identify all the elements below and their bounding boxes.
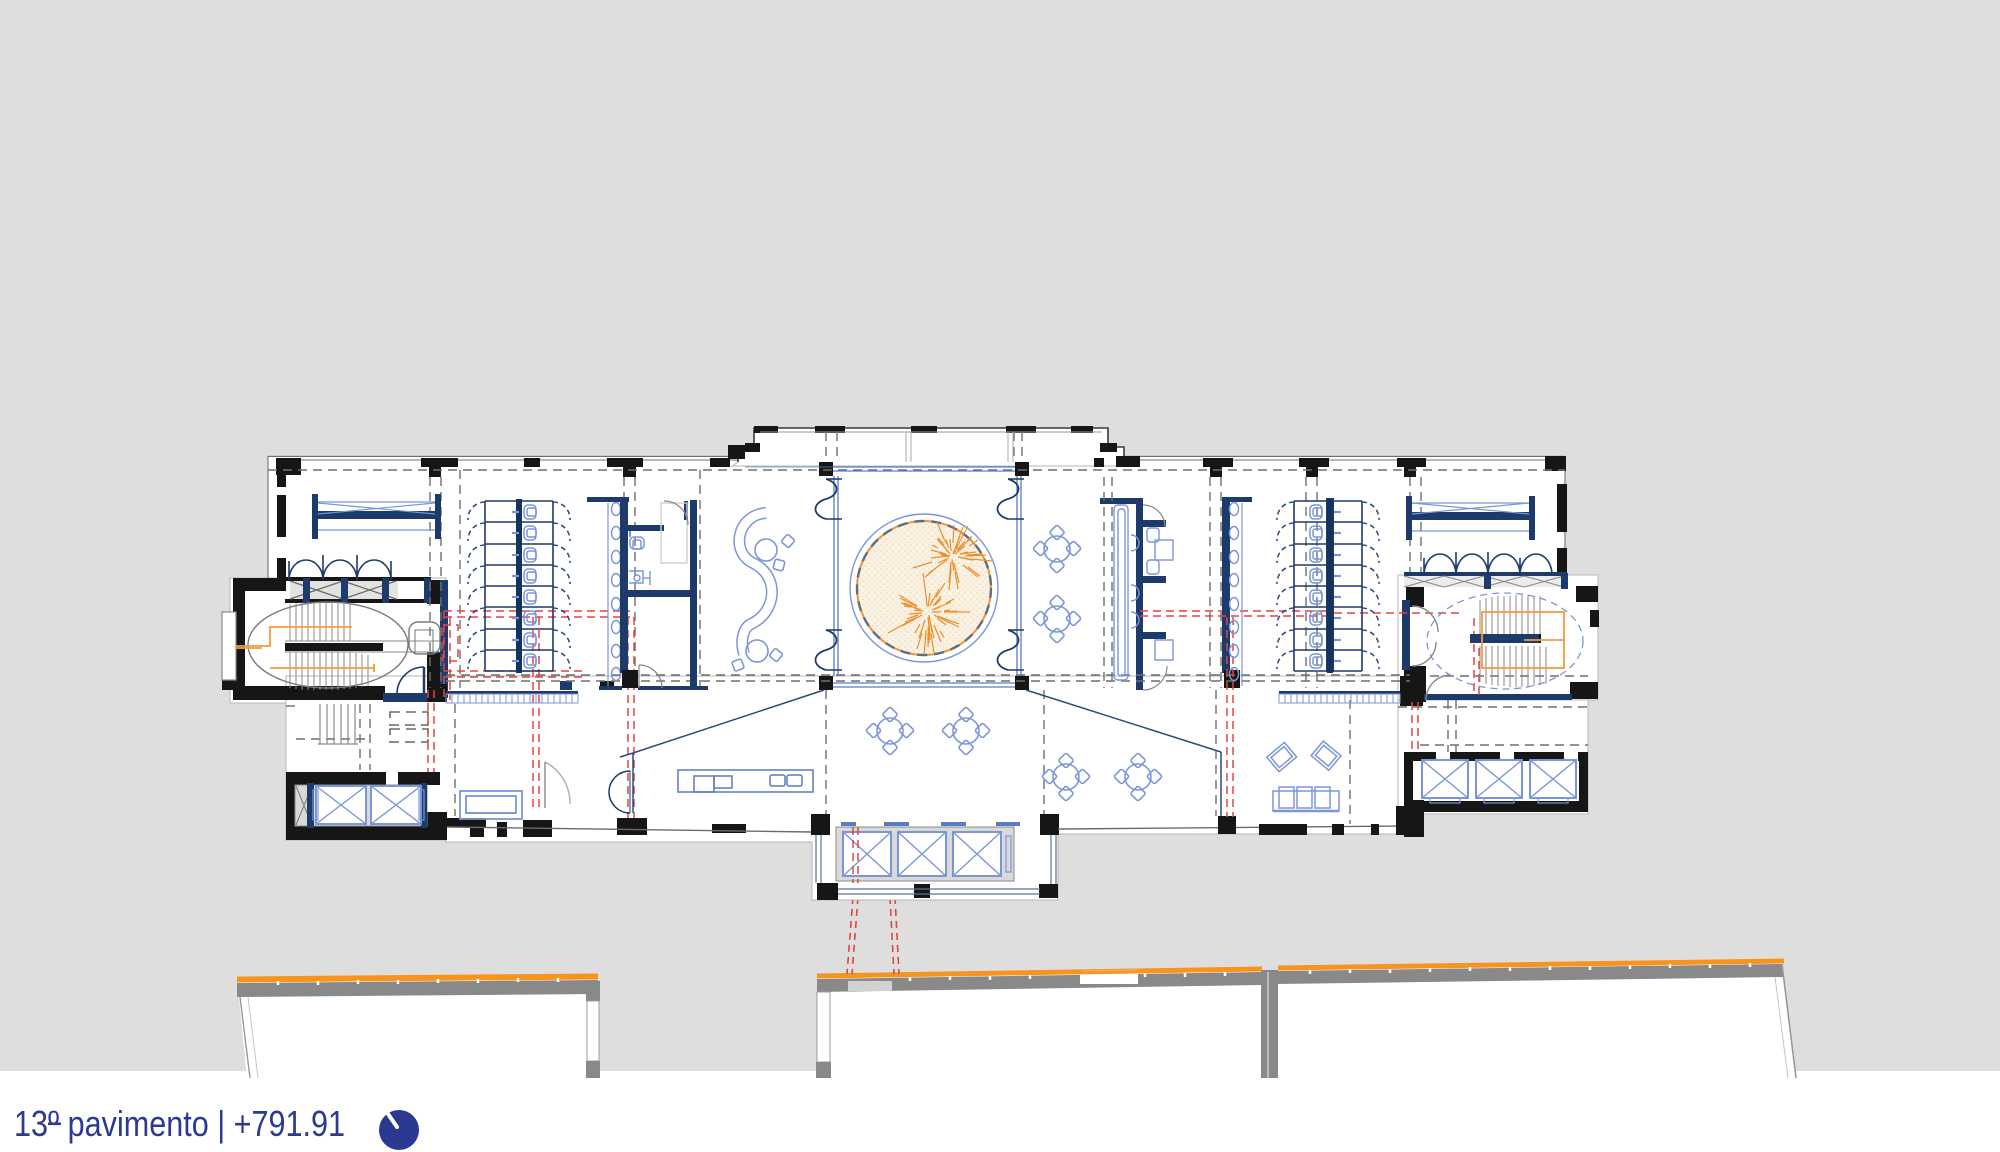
svg-text:13º pavimento | +791.91: 13º pavimento | +791.91	[14, 1103, 345, 1144]
